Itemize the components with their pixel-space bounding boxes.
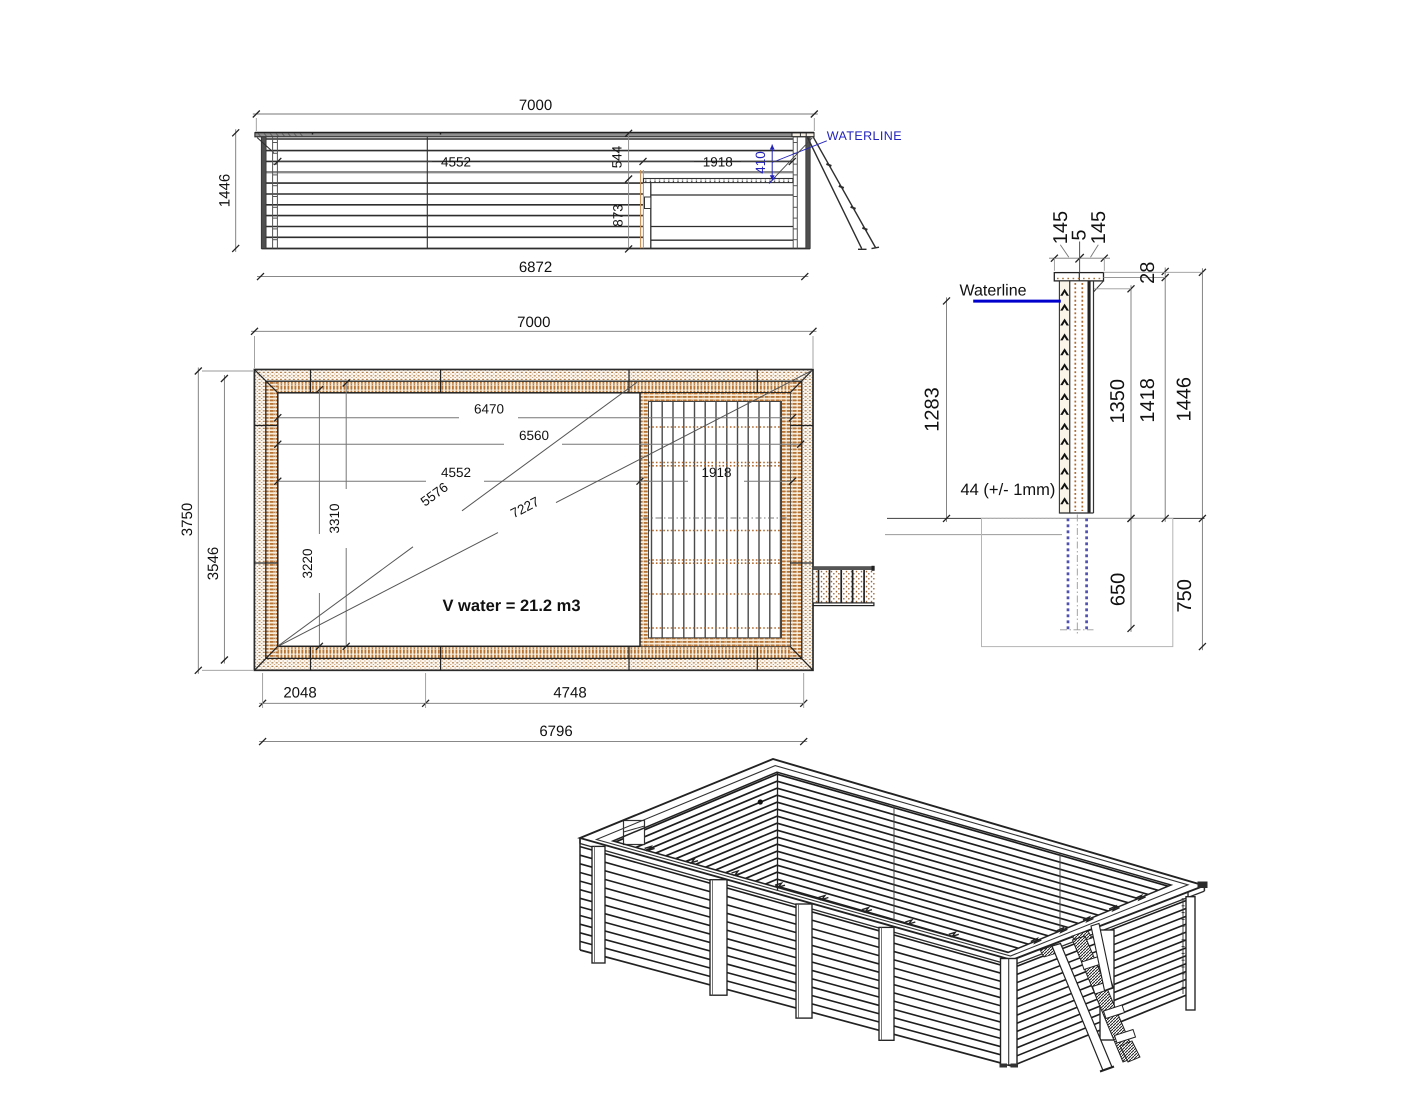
svg-text:1446: 1446 (217, 174, 234, 207)
svg-text:1918: 1918 (703, 154, 733, 169)
svg-text:3220: 3220 (300, 548, 315, 578)
svg-text:WATERLINE: WATERLINE (827, 129, 902, 143)
svg-text:410: 410 (753, 151, 768, 174)
svg-text:V water = 21.2 m3: V water = 21.2 m3 (442, 597, 580, 615)
svg-text:2048: 2048 (283, 685, 316, 702)
svg-text:750: 750 (1174, 579, 1196, 612)
svg-text:1283: 1283 (922, 387, 944, 432)
svg-text:1350: 1350 (1107, 379, 1129, 424)
svg-text:3750: 3750 (179, 503, 196, 536)
svg-text:1446: 1446 (1174, 377, 1196, 422)
svg-text:1418: 1418 (1137, 378, 1159, 423)
svg-text:7000: 7000 (519, 97, 552, 114)
svg-text:44 (+/- 1mm): 44 (+/- 1mm) (961, 481, 1056, 499)
svg-text:28: 28 (1137, 262, 1159, 284)
svg-text:3546: 3546 (205, 547, 222, 580)
svg-text:4552: 4552 (441, 154, 471, 169)
svg-text:6796: 6796 (539, 723, 572, 740)
svg-text:1918: 1918 (701, 465, 731, 480)
svg-text:6470: 6470 (474, 402, 504, 417)
svg-text:4552: 4552 (441, 465, 471, 480)
svg-text:6560: 6560 (519, 428, 549, 443)
svg-text:Waterline: Waterline (960, 283, 1027, 300)
svg-text:544: 544 (610, 145, 625, 168)
svg-text:650: 650 (1107, 573, 1129, 606)
svg-text:4748: 4748 (553, 685, 586, 702)
svg-text:7000: 7000 (517, 314, 550, 331)
svg-text:873: 873 (611, 204, 626, 227)
svg-text:145: 145 (1088, 211, 1110, 244)
svg-text:6872: 6872 (519, 259, 552, 276)
svg-text:3310: 3310 (327, 503, 342, 533)
